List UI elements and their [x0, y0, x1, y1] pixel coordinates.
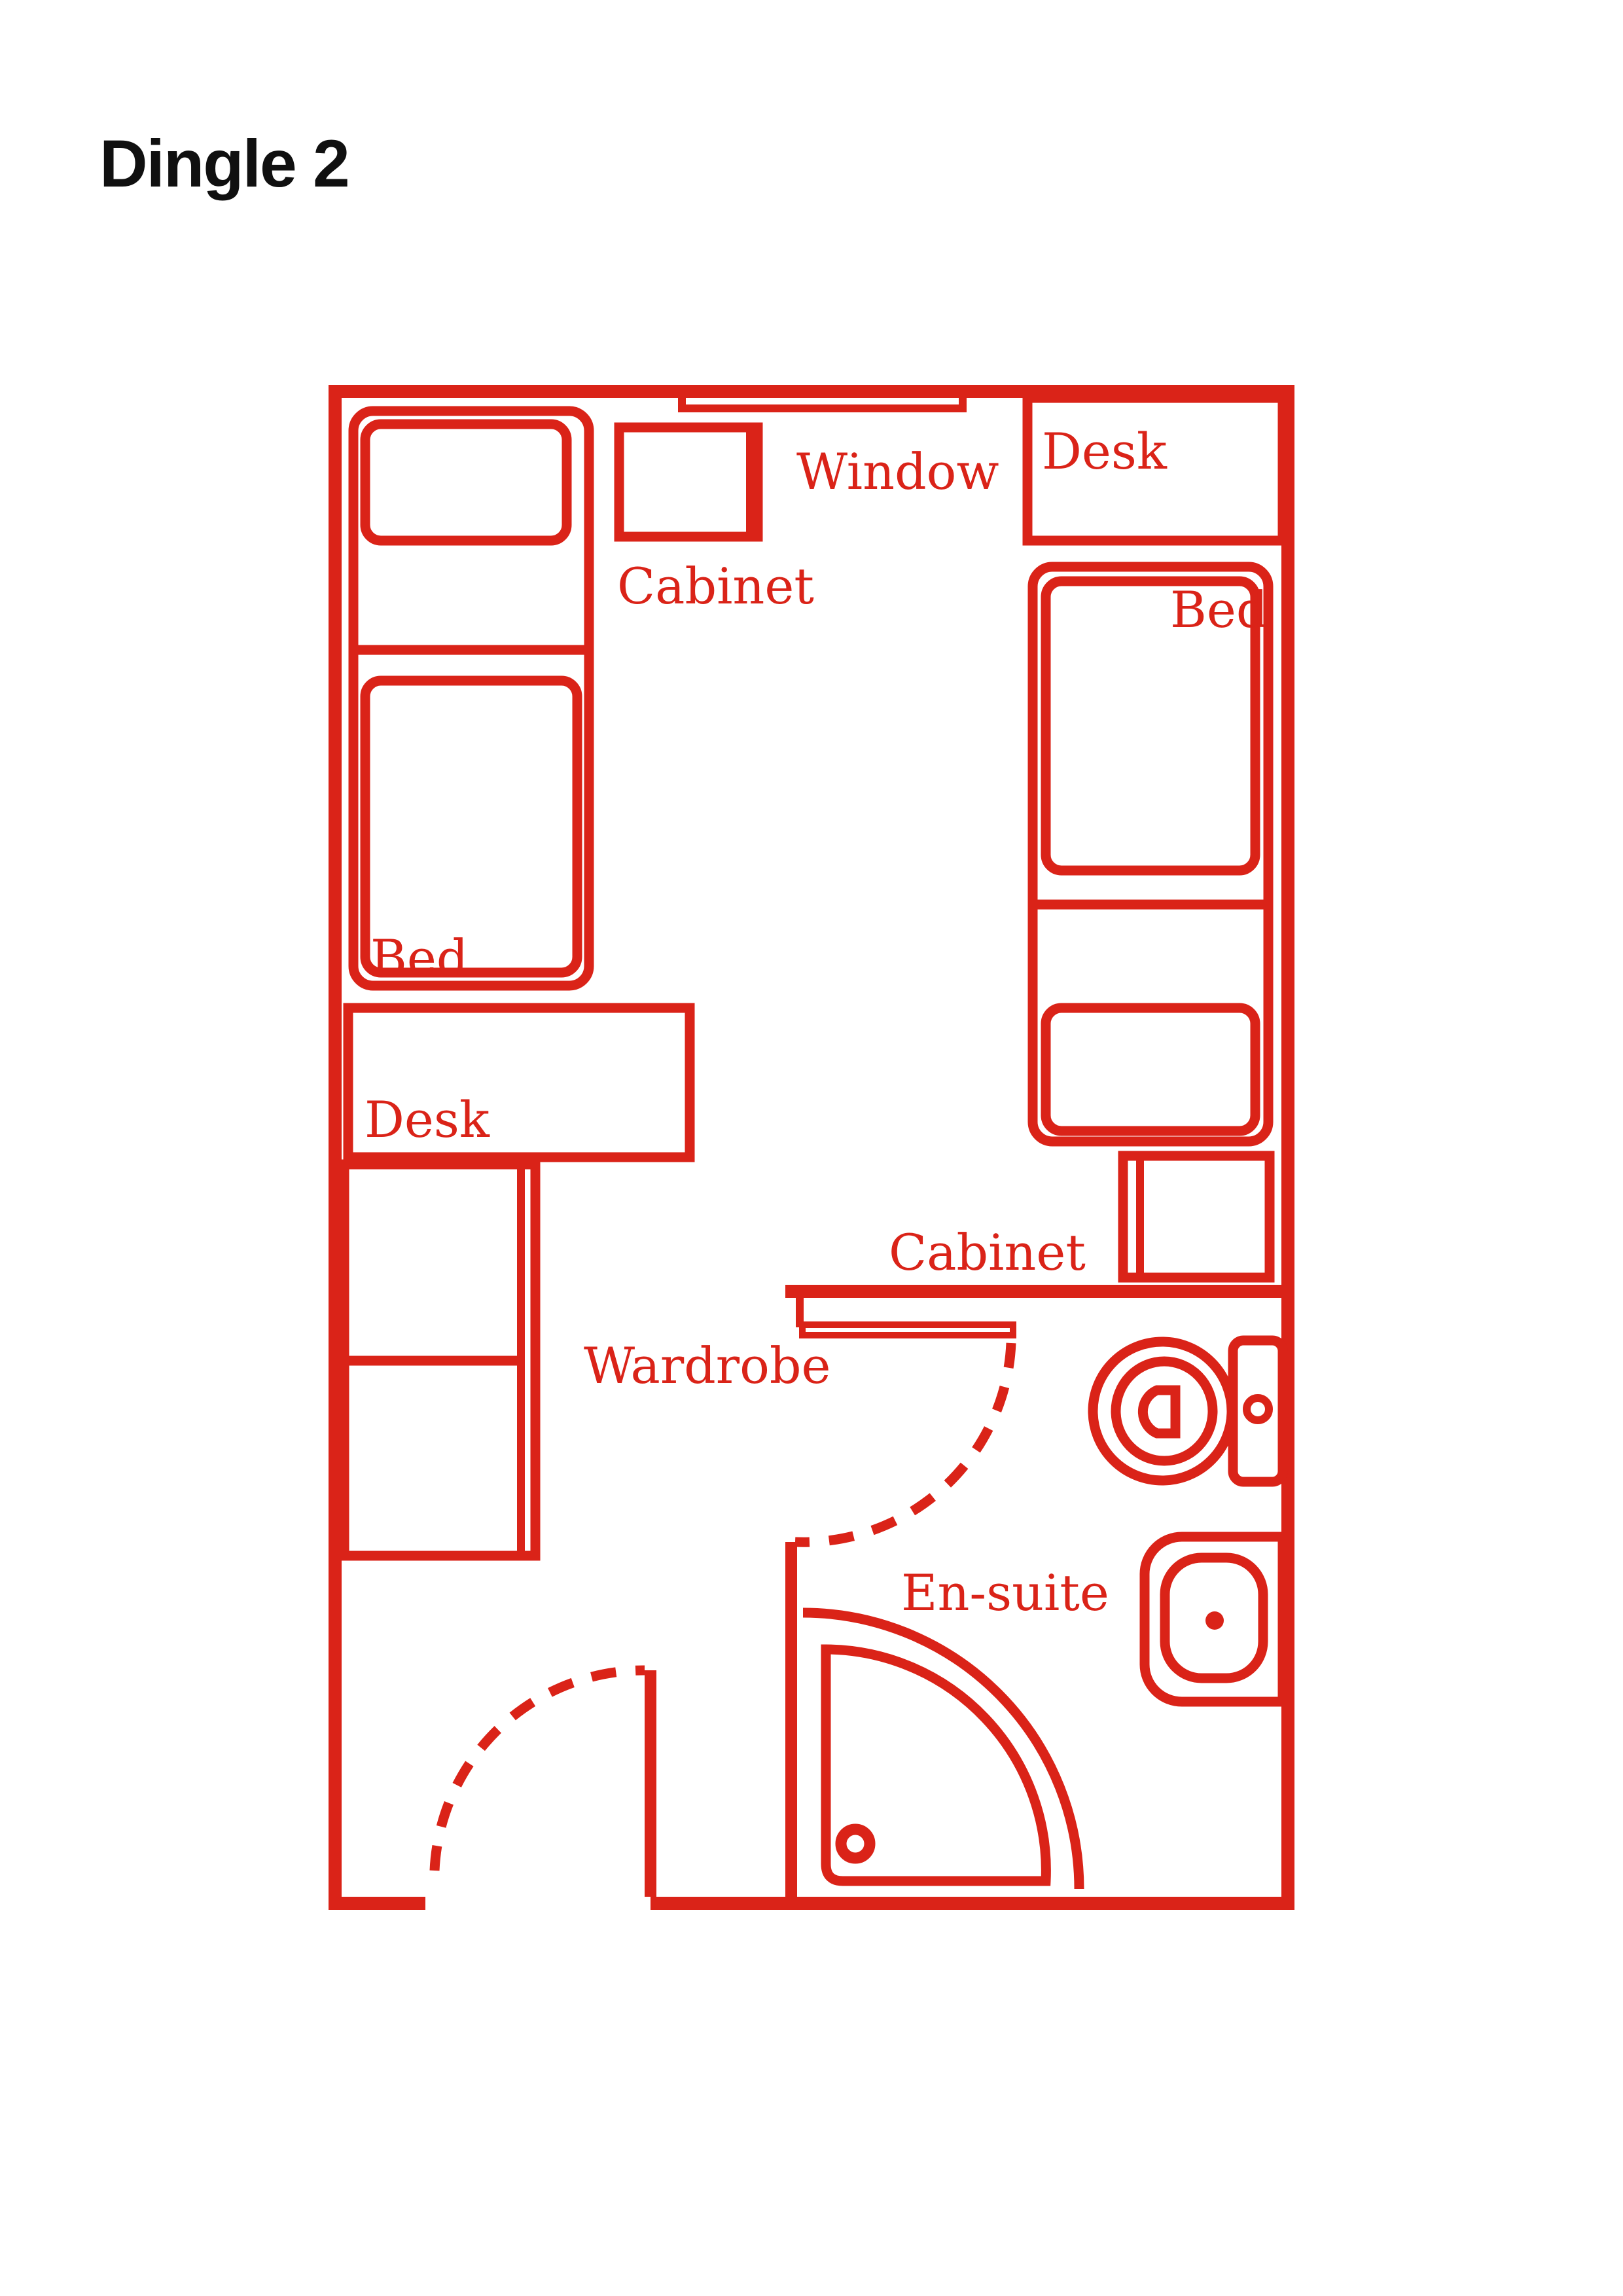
shower: [803, 1613, 1079, 1889]
cabinet-top-outline: [619, 427, 758, 537]
label-desk-right: Desk: [1042, 422, 1168, 480]
entry-door-swing-arc: [435, 1670, 645, 1871]
label-wardrobe: Wardrobe: [584, 1336, 831, 1395]
toilet-cistern: [1233, 1340, 1283, 1482]
floor-plan-drawing: Dingle 2: [0, 0, 1623, 2296]
floor-plan-page: Dingle 2: [0, 0, 1623, 2296]
cabinet-ensuite: [1123, 1156, 1270, 1278]
bed-right-outline: [1033, 567, 1268, 1141]
bed-left-pillow: [365, 424, 567, 541]
toilet-seat: [1143, 1390, 1175, 1433]
sink-tap: [1205, 1611, 1224, 1630]
label-bed-right: Bed: [1170, 581, 1268, 639]
shower-drain: [841, 1829, 870, 1858]
label-cabinet-top: Cabinet: [617, 557, 814, 615]
cabinet-ensuite-outline: [1123, 1156, 1270, 1278]
shower-tray: [826, 1649, 1046, 1881]
page-title: Dingle 2: [99, 126, 349, 201]
label-ensuite: En-suite: [901, 1564, 1109, 1622]
cabinet-top: [619, 427, 758, 537]
sink: [1145, 1537, 1283, 1702]
label-bed-left: Bed: [370, 929, 468, 987]
bed-right: [1033, 567, 1268, 1141]
label-desk-left: Desk: [365, 1090, 490, 1149]
toilet-flush-button: [1247, 1398, 1269, 1420]
toilet-bowl-inner: [1116, 1361, 1213, 1461]
bed-left-outline: [353, 411, 589, 986]
label-cabinet-ensuite: Cabinet: [889, 1223, 1086, 1282]
entry-door: [435, 1670, 651, 1897]
window-marker: [682, 397, 963, 408]
label-window: Window: [796, 442, 999, 501]
bed-right-pillow: [1046, 1008, 1255, 1131]
ensuite-door-leaf: [802, 1325, 1013, 1335]
bed-left: [353, 411, 589, 986]
toilet: [1093, 1340, 1283, 1482]
wardrobe: [344, 1164, 535, 1556]
